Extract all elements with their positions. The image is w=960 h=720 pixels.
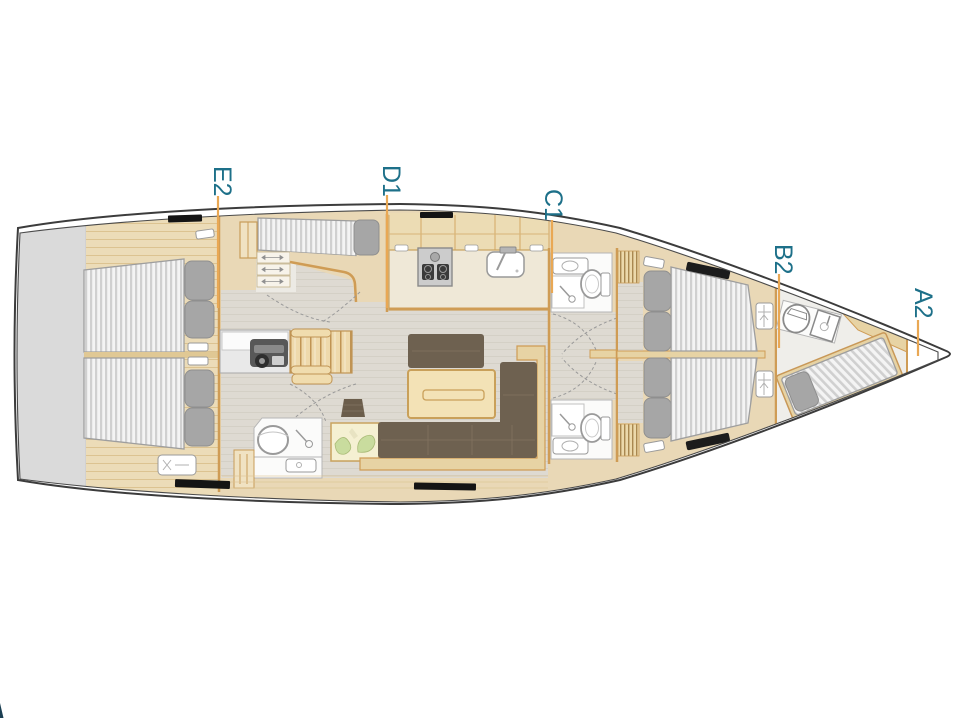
- svg-text:A2: A2: [909, 288, 937, 319]
- svg-text:B2: B2: [769, 244, 797, 275]
- svg-text:E2: E2: [208, 166, 236, 197]
- svg-text:C1: C1: [539, 189, 567, 221]
- svg-text:D1: D1: [377, 165, 405, 197]
